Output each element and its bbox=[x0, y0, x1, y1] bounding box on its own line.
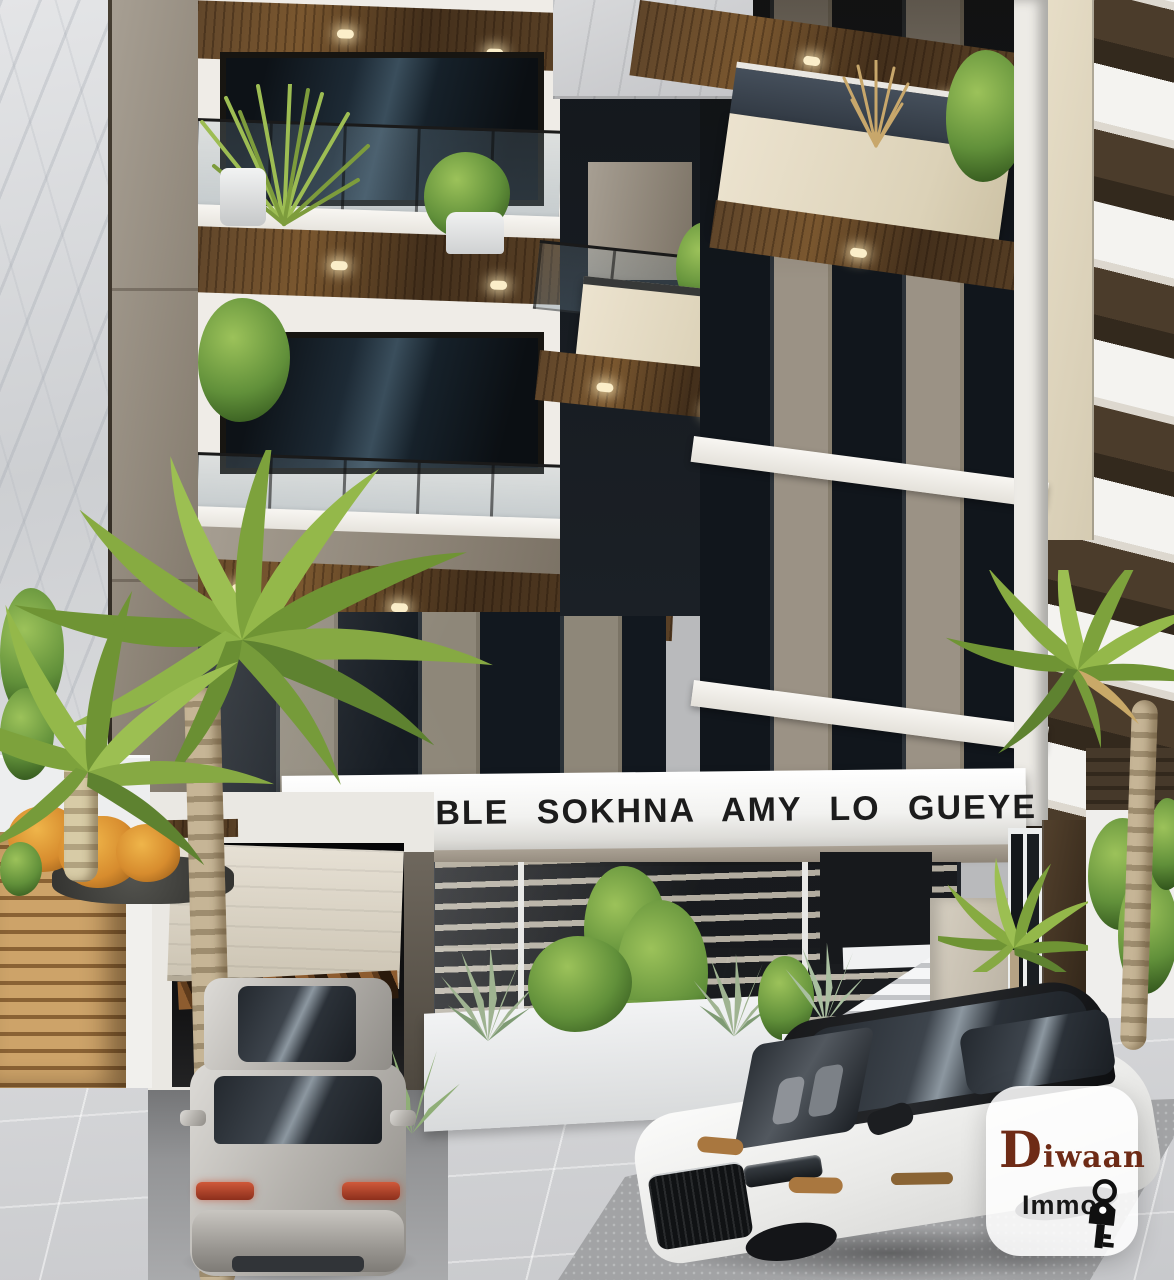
suv-seat bbox=[771, 1076, 806, 1126]
suv-hood-vent bbox=[789, 1177, 843, 1194]
soffit-light bbox=[490, 280, 507, 290]
right-palm-fronds bbox=[928, 570, 1174, 786]
dried-grass-plant bbox=[838, 60, 914, 148]
balcony-chair bbox=[446, 212, 504, 254]
suv-seat bbox=[807, 1063, 844, 1118]
watermark-brand: Diwaan bbox=[999, 1126, 1146, 1176]
silver-hatchback bbox=[190, 978, 410, 1280]
car-taillight-right bbox=[342, 1182, 400, 1200]
car-bumper-vent bbox=[232, 1256, 364, 1272]
ceiling-light bbox=[337, 29, 354, 39]
soffit-light bbox=[596, 382, 614, 393]
white-plant-pot bbox=[220, 168, 266, 226]
car-sunroof bbox=[238, 986, 356, 1062]
soffit-light bbox=[849, 247, 867, 258]
car-rear-window bbox=[214, 1076, 382, 1144]
car-taillight-left bbox=[196, 1182, 254, 1200]
suv-side-trim bbox=[891, 1172, 953, 1185]
suv-grille bbox=[647, 1161, 754, 1251]
key-icon bbox=[1078, 1178, 1134, 1254]
scene: IMMEUBLE SOKHNA AMY LO GUEYE bbox=[0, 0, 1174, 1280]
agave-plant bbox=[432, 938, 544, 1050]
car-mirror-right bbox=[390, 1110, 416, 1126]
soffit-light bbox=[331, 261, 348, 271]
watermark-card: Diwaan Immo bbox=[986, 1086, 1138, 1256]
car-mirror-left bbox=[180, 1110, 206, 1126]
left-palm-fronds bbox=[0, 450, 620, 870]
wood-soffit-floor1 bbox=[190, 226, 566, 305]
potted-palm-fronds bbox=[938, 852, 1088, 972]
